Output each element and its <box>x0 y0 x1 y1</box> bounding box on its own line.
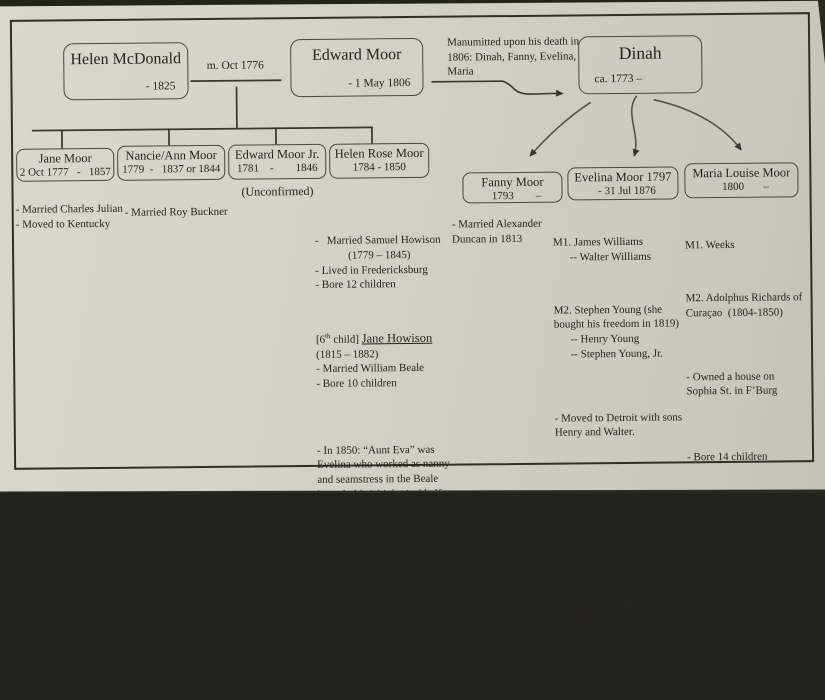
person-box-edward-moor-jr: Edward Moor Jr. 1781 - 1846 <box>228 144 326 180</box>
marriage-label: m. Oct 1776 <box>180 59 290 72</box>
person-dates: 1800 – <box>685 180 797 193</box>
note-children: - Bore 14 children <box>687 449 815 465</box>
marriage-line <box>190 80 281 81</box>
descendant-name-stephannie-addison: Stephannie Addison <box>556 595 691 613</box>
note-marion-gamble: Marion Gamble descends from Jane Howison… <box>318 578 458 627</box>
note-house: - Owned a house on Sophia St. in F’Burg <box>686 369 814 399</box>
paper-sheet: Helen McDonald - 1825 m. Oct 1776 Edward… <box>0 0 825 493</box>
manumission-arrow <box>431 81 562 96</box>
photo-edge-top <box>0 0 825 8</box>
person-box-maria-louise-moor: Maria Louise Moor 1800 – <box>684 162 798 198</box>
notes-nancie-ann-moor: - Married Roy Buckner <box>125 205 250 221</box>
person-dates: - 1825 <box>146 80 176 92</box>
person-dates: 1779 - 1837 or 1844 <box>118 163 224 176</box>
note-text: child] <box>331 333 362 345</box>
person-dates: 1781 - 1846 <box>229 162 325 175</box>
person-name: Nancie/Ann Moor <box>118 146 224 164</box>
person-dates: - 1 May 1806 <box>348 77 410 90</box>
person-name: Jane Moor <box>17 149 113 167</box>
person-dates: 2 Oct 1777 - 1857 <box>17 166 113 179</box>
person-box-nancie-ann-moor: Nancie/Ann Moor 1779 - 1837 or 1844 <box>117 145 225 181</box>
note-jane-howison: [6th child] Jane Howison (1815 – 1882) -… <box>316 330 457 392</box>
person-name: Maria Louise Moor <box>685 163 797 181</box>
note-underground-railroad: - Family was active in the final stop of… <box>688 596 817 656</box>
person-dates: ca. 1773 – <box>594 73 642 85</box>
person-box-evelina-moor: Evelina Moor 1797 - 31 Jul 1876 <box>567 166 678 200</box>
note-marriage-2: M2. Adolphus Richards of Curaçao (1804-1… <box>685 290 813 320</box>
arrow-dinah-maria <box>654 99 741 151</box>
manumission-note: Manumitted upon his death in 1806: Dinah… <box>447 34 597 79</box>
descendant-name-kimberly-crafton: Kimberly Crafton <box>555 499 690 517</box>
notes-maria-louise-moor: M1. Weeks M2. Adolphus Richards of Curaç… <box>685 208 818 693</box>
note-marriage-1: M1. Weeks <box>685 237 813 253</box>
arrow-dinah-evelina <box>632 96 638 156</box>
notes-evelina-moor: M1. James Williams -- Walter Williams M2… <box>553 205 693 681</box>
family-tree-chart: Helen McDonald - 1825 m. Oct 1776 Edward… <box>10 12 814 470</box>
person-name: Evelina Moor 1797 <box>568 167 677 185</box>
notes-fanny-moor: - Married Alexander Duncan in 1813 <box>452 217 567 247</box>
note-text: descends from Evelina and Walter William… <box>556 517 675 545</box>
note-kimberly-crafton: Kimberly Craftondescends from Evelina an… <box>555 499 690 546</box>
note-moved-toronto: - Moved to Toronto, then Detroit. <box>688 515 816 545</box>
descendant-name-jane-howison: Jane Howison <box>362 331 433 346</box>
person-dates: - 31 Jul 1876 <box>568 184 677 197</box>
notes-jane-moor: - Married Charles Julian - Moved to Kent… <box>16 202 141 232</box>
person-dates: 1784 - 1850 <box>330 161 428 174</box>
person-name: Edward Moor <box>291 39 422 65</box>
person-name: Helen McDonald <box>64 43 187 69</box>
person-name: Helen Rose Moor <box>330 144 428 162</box>
person-box-helen-mcdonald: Helen McDonald - 1825 <box>63 42 189 100</box>
person-name: Fanny Moor <box>463 173 561 191</box>
note-marriage-1: M1. James Williams -- Walter Williams <box>553 235 688 266</box>
person-box-jane-moor: Jane Moor 2 Oct 1777 - 1857 <box>16 148 114 182</box>
note-howison-marriage: - Married Samuel Howison (1779 – 1845) -… <box>315 233 456 293</box>
note-moved-detroit: - Moved to Detroit with sons Henry and W… <box>555 410 690 441</box>
note-aunt-eva: - In 1850: “Aunt Eva” was Evelina who wo… <box>317 442 458 516</box>
unconfirmed-tag: (Unconfirmed) <box>216 184 338 200</box>
person-name: Edward Moor Jr. <box>229 145 325 163</box>
person-box-edward-moor: Edward Moor - 1 May 1806 <box>290 38 424 97</box>
sibling-line <box>32 127 373 130</box>
notes-helen-rose-moor: - Married Samuel Howison (1779 – 1845) -… <box>315 204 459 665</box>
note-stephannie-addison: Stephannie Addisondescends from Evelina … <box>556 595 691 642</box>
descendant-name-marion-gamble: Marion Gamble <box>318 579 407 595</box>
photo-background: { "couple": { "wife": { "name": "Helen M… <box>0 0 825 493</box>
note-marriage-2: M2. Stephen Young (she bought his freedo… <box>554 302 690 362</box>
note-text: [6 <box>316 334 325 346</box>
person-box-dinah: Dinah ca. 1773 – <box>578 35 703 94</box>
person-box-helen-rose-moor: Helen Rose Moor 1784 - 1850 <box>329 143 429 179</box>
note-text: descends from Evelina and Stephen Young,… <box>557 613 676 641</box>
photo-edge-corner <box>812 0 825 64</box>
person-box-fanny-moor: Fanny Moor 1793 – <box>462 172 562 204</box>
person-name: Dinah <box>579 36 701 64</box>
person-dates: 1793 – <box>464 190 562 203</box>
arrow-dinah-fanny <box>530 102 592 156</box>
